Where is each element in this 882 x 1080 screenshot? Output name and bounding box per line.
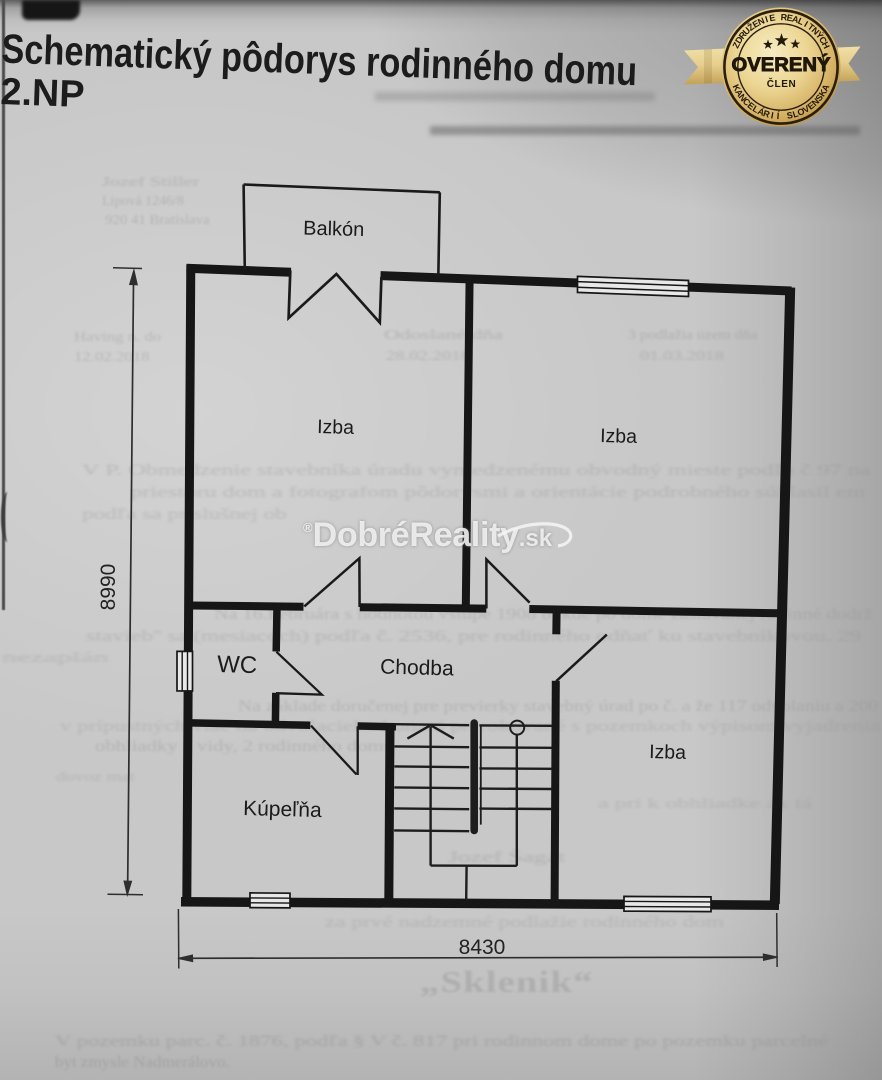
svg-text:Izba: Izba <box>600 425 638 448</box>
svg-text:Izba: Izba <box>649 741 687 764</box>
svg-text:2.NP: 2.NP <box>0 71 85 116</box>
svg-text:Balkón: Balkón <box>303 218 365 242</box>
svg-text:8430: 8430 <box>459 936 506 959</box>
svg-text:Kúpeľňa: Kúpeľňa <box>243 797 322 822</box>
svg-text:OVERENÝ: OVERENÝ <box>732 52 831 76</box>
svg-text:ČLEN: ČLEN <box>767 77 797 90</box>
svg-text:WC: WC <box>217 651 258 679</box>
svg-text:Schematický pôdorys rodinného: Schematický pôdorys rodinného domu <box>1 26 638 95</box>
svg-text:Izba: Izba <box>317 416 355 439</box>
svg-text:Chodba: Chodba <box>380 656 454 681</box>
svg-text:8990: 8990 <box>97 564 120 611</box>
